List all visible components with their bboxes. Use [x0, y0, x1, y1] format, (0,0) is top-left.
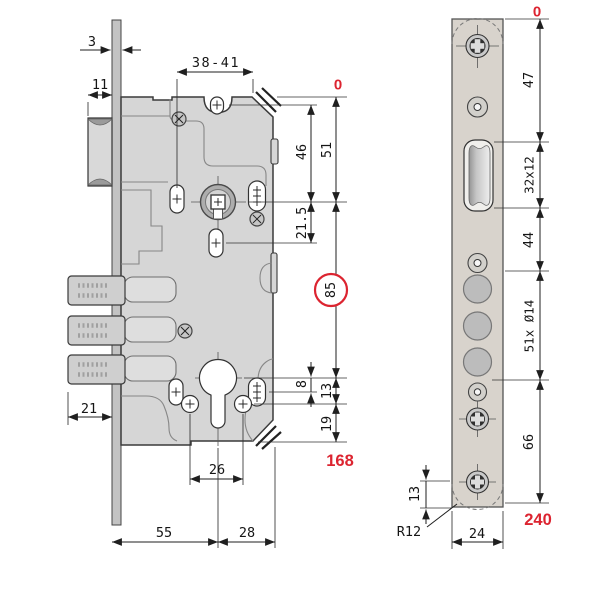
dim-r12: R12 [397, 524, 421, 540]
deadbolt-1 [68, 276, 125, 305]
r12-leader-line [427, 504, 457, 527]
deadbolts [68, 276, 125, 384]
dim-46: 46 [294, 144, 310, 160]
dim-screw-spacing-26: 26 [209, 462, 225, 478]
edge-tab-lower [271, 253, 277, 293]
lock-body-view: 3 11 38-41 0 46 51 21.5 85 8 13 19 168 2… [68, 20, 354, 548]
edge-tab-upper [271, 139, 278, 164]
datum-zero-body: 0 [334, 77, 342, 94]
faceplate-edge-bar [112, 20, 121, 525]
dim-handle-range: 38-41 [192, 55, 240, 71]
latch-cutout [464, 140, 493, 211]
dim-bolt-throw-21: 21 [81, 401, 97, 417]
lock-technical-drawing: 3 11 38-41 0 46 51 21.5 85 8 13 19 168 2… [0, 0, 600, 600]
dim-44: 44 [521, 232, 537, 248]
dim-13-plate: 13 [407, 486, 423, 502]
dim-13-body: 13 [319, 383, 335, 399]
dim-backset-55: 55 [156, 525, 172, 541]
datum-zero-plate: 0 [533, 4, 541, 21]
bolt-holes [464, 275, 492, 376]
latch-bolt [88, 118, 112, 186]
pin-hole-mid-icon [468, 254, 487, 273]
deadbolt-3 [68, 355, 125, 384]
dim-plate-thickness: 3 [88, 34, 96, 50]
bolt-guide-slots [124, 277, 176, 381]
pin-hole-top-icon [468, 97, 488, 117]
dim-51x-d14: 51x Ø14 [522, 300, 537, 353]
drawing-canvas: 3 11 38-41 0 46 51 21.5 85 8 13 19 168 2… [0, 0, 600, 600]
dim-51: 51 [319, 142, 335, 158]
screw-cross-icon [178, 324, 192, 338]
dim-rear-28: 28 [239, 525, 255, 541]
dim-21-5: 21.5 [294, 207, 310, 240]
dim-168-total: 168 [326, 452, 354, 470]
dim-24-width: 24 [469, 526, 485, 542]
deadbolt-2 [68, 316, 125, 345]
dim-8: 8 [294, 380, 310, 388]
dim-32x12: 32x12 [522, 156, 537, 194]
dim-47: 47 [521, 72, 537, 88]
dim-85-circled: 85 [323, 282, 339, 298]
screw-cross-icon [172, 112, 186, 126]
dim-19: 19 [319, 416, 335, 432]
screw-cross-icon [250, 212, 264, 226]
dim-latch-protrusion: 11 [92, 77, 108, 93]
dim-66: 66 [521, 434, 537, 450]
dim-240-total: 240 [524, 511, 552, 529]
pin-hole-bottom-icon [469, 383, 487, 401]
faceplate-view: 0 47 32x12 44 51x Ø14 66 13 240 R12 24 [397, 4, 552, 550]
